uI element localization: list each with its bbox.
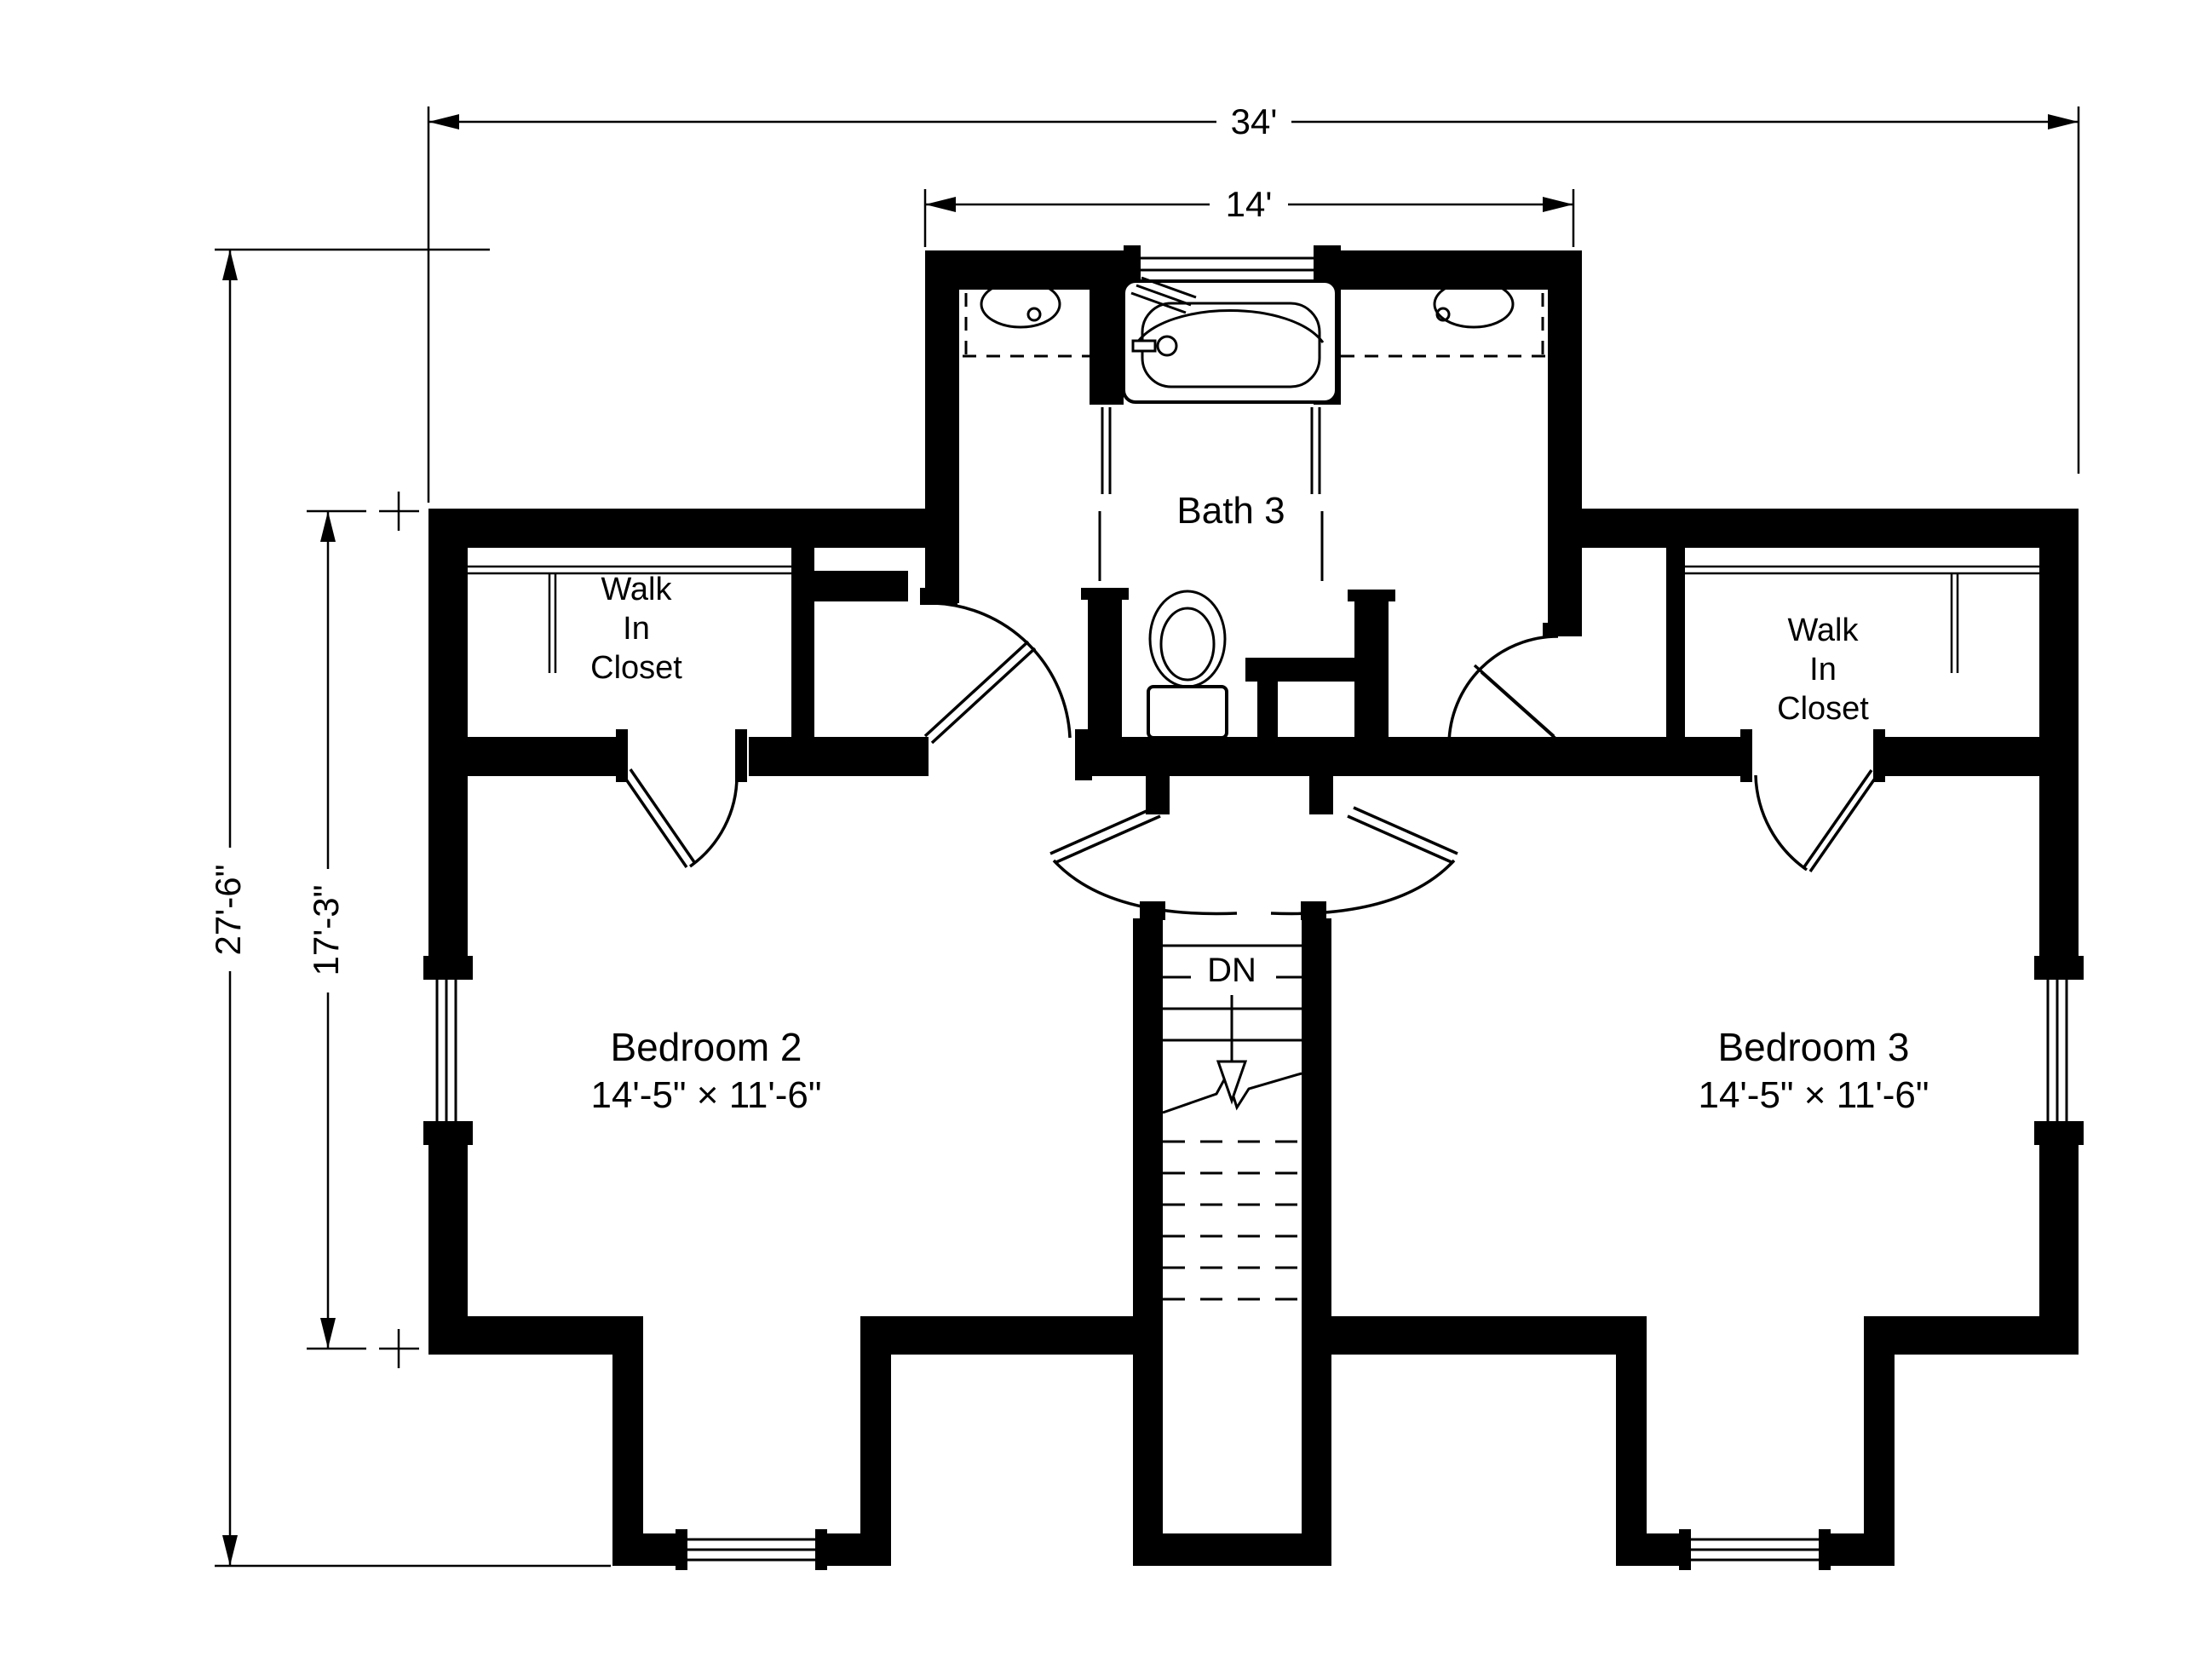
room-label-closet-left-1: Walk xyxy=(601,572,672,607)
wall-wing-top-left xyxy=(428,509,959,548)
vanity-left xyxy=(963,281,1090,356)
wall-bottom-2 xyxy=(860,1316,1163,1355)
vanity-right xyxy=(1341,281,1546,356)
wall-dormer-left-bottom-b xyxy=(822,1533,860,1566)
wall-bottom-1 xyxy=(428,1316,643,1355)
window-jamb-east-bottom xyxy=(2034,1121,2084,1145)
window-jamb-dormer-right-b xyxy=(1819,1529,1831,1570)
wall-hall-2 xyxy=(749,737,929,776)
wall-stair-west xyxy=(1133,918,1163,1566)
dim-label-bedroom-depth: 17'-3" xyxy=(306,885,346,976)
wall-dormer-left-w xyxy=(612,1355,643,1566)
room-label-closet-right-2: In xyxy=(1809,652,1837,688)
door-bath-right xyxy=(1449,636,1561,744)
dim-overall-depth xyxy=(215,250,611,1566)
door-hall-right-leaf xyxy=(1271,808,1458,913)
stub-stair-top-east xyxy=(1301,901,1326,920)
wall-dormer-right-e xyxy=(1864,1355,1895,1566)
window-jamb-dormer-left-a xyxy=(676,1529,687,1570)
hinge-stub-bath-east xyxy=(1543,623,1582,636)
room-label-closet-right-1: Walk xyxy=(1787,613,1859,648)
room-label-closet-right-3: Closet xyxy=(1777,691,1869,727)
window-jamb-dormer-left-b xyxy=(815,1529,827,1570)
wall-hall-4 xyxy=(1875,737,2039,776)
wall-bath-east xyxy=(1548,250,1582,635)
wall-west-upper xyxy=(428,509,468,961)
wall-vestibule-stub xyxy=(814,571,908,601)
wall-toilet-left-flare xyxy=(1081,588,1129,600)
wall-stair-east xyxy=(1302,918,1331,1566)
door-hall-left-leaf xyxy=(1050,808,1237,913)
door-closet-left xyxy=(623,769,737,867)
toilet xyxy=(1148,591,1227,743)
jamb-closet-left-a xyxy=(616,729,628,782)
window-east xyxy=(2048,980,2067,1121)
wall-toilet-right-flare xyxy=(1348,590,1395,601)
room-label-closet-left-2: In xyxy=(623,611,650,647)
walls xyxy=(423,245,2084,1570)
stub-stair-hall-east xyxy=(1309,776,1333,814)
wall-toilet-left xyxy=(1088,588,1122,741)
wall-linen-side xyxy=(1257,682,1278,737)
jamb-closet-left-b xyxy=(735,729,747,782)
sink-left-drain xyxy=(1028,308,1040,320)
wall-closet-right-west xyxy=(1666,548,1685,737)
windows xyxy=(437,258,2067,1560)
floor-plan-drawing: 34' 14' 27'-6" 17'-3" Bath 3 Walk In Clo… xyxy=(0,0,2208,1680)
window-jamb-east-top xyxy=(2034,956,2084,980)
bathtub xyxy=(1124,278,1337,402)
wall-wing-top-right xyxy=(1548,509,2079,548)
room-label-bath: Bath 3 xyxy=(1176,490,1285,532)
wall-hall-1 xyxy=(468,737,626,776)
door-closet-right xyxy=(1756,770,1878,872)
centerline-tick-bottom xyxy=(379,1329,419,1368)
stair-dn-label: DN xyxy=(1207,952,1256,989)
jamb-closet-right-a xyxy=(1740,729,1752,782)
wall-dormer-right-w xyxy=(1616,1355,1647,1566)
room-size-bedroom2: 14'-5" × 11'-6" xyxy=(590,1074,821,1116)
wall-stair-bottom xyxy=(1133,1533,1331,1566)
window-dormer-right xyxy=(1691,1539,1819,1560)
staircase xyxy=(1163,946,1302,1299)
room-label-bedroom3: Bedroom 3 xyxy=(1717,1025,1909,1069)
wall-bottom-3 xyxy=(1302,1316,1647,1355)
dim-label-overall-depth: 27'-6" xyxy=(208,865,248,956)
dim-label-bath-width: 14' xyxy=(1226,184,1273,224)
window-west xyxy=(437,980,456,1121)
wall-dormer-left-e xyxy=(860,1355,891,1566)
window-jamb-west-top xyxy=(423,956,473,980)
wall-bath-west xyxy=(925,250,959,603)
door-bath-left xyxy=(925,603,1070,743)
wall-linen-top xyxy=(1245,658,1389,682)
window-jamb-dormer-right-a xyxy=(1679,1529,1691,1570)
wall-tub-left xyxy=(1090,276,1124,405)
wall-dormer-right-bottom-b xyxy=(1826,1533,1864,1566)
wall-closet-left-east xyxy=(791,548,814,737)
floor-plan-sheet: 34' 14' 27'-6" 17'-3" Bath 3 Walk In Clo… xyxy=(0,0,2208,1680)
wall-bottom-4 xyxy=(1864,1316,2079,1355)
wall-east-upper xyxy=(2039,509,2079,961)
room-size-bedroom3: 14'-5" × 11'-6" xyxy=(1698,1074,1929,1116)
dim-label-overall-width: 34' xyxy=(1231,101,1278,141)
window-dormer-left xyxy=(687,1539,815,1560)
room-label-closet-left-3: Closet xyxy=(590,650,682,686)
window-over-tub xyxy=(1141,258,1314,282)
window-jamb-west-bottom xyxy=(423,1121,473,1145)
closet-right-shelf xyxy=(1685,567,2039,673)
toilet-tank xyxy=(1148,687,1227,738)
centerline-tick-top xyxy=(379,492,419,531)
room-label-bedroom2: Bedroom 2 xyxy=(610,1025,802,1069)
